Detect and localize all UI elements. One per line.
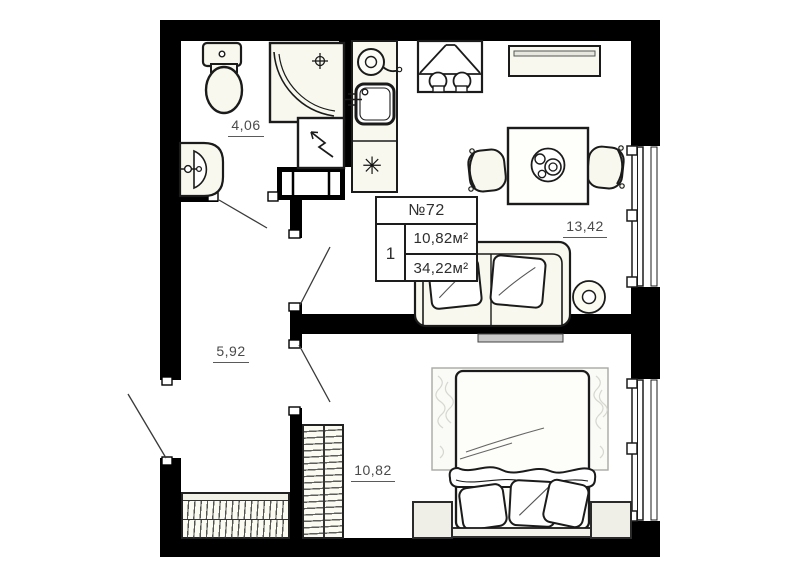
wall-right-1: [631, 20, 660, 146]
wall-top: [160, 20, 660, 41]
bathroom-door-swing: [219, 200, 267, 228]
door-jambs: [162, 192, 300, 465]
sofa-pillow-right: [490, 255, 546, 308]
kitchen-living-area-label: 13,42: [555, 218, 615, 238]
window-living: [627, 146, 657, 287]
wardrobe-bedroom: [302, 424, 344, 539]
vent-shaft: [277, 167, 345, 200]
bed-headboard: [451, 528, 592, 537]
dining-chair-left: [467, 148, 507, 193]
bathroom-area-label: 4,06: [218, 117, 274, 137]
refrigerator-snowflake-icon: ✳: [358, 152, 386, 180]
kitchen-living-area-value: 13,42: [563, 218, 607, 238]
entry-door-swing: [128, 394, 166, 458]
bed-pillow-3: [542, 478, 590, 528]
kitchen-cabinet: [509, 46, 600, 76]
unit-room-count: 1: [377, 225, 406, 282]
wardrobe-hallway-track: [183, 494, 288, 501]
unit-number: №72: [377, 198, 476, 225]
bathroom-sink: [180, 143, 223, 196]
plate-icon: [532, 149, 565, 182]
unit-info-box: №72 1 10,82м² 34,22м²: [375, 196, 478, 282]
nightstand-left: [413, 502, 452, 538]
bedroom-area-label: 10,82: [343, 462, 403, 482]
bed: [450, 371, 596, 537]
dining-table: [508, 128, 588, 204]
bedroom-area-value: 10,82: [351, 462, 395, 482]
unit-living-area: 10,82м²: [406, 225, 476, 255]
wall-right-2: [631, 287, 660, 379]
hallway-area-label: 5,92: [203, 343, 259, 363]
pouf: [573, 281, 605, 313]
wardrobe-bedroom-divider: [323, 426, 325, 537]
wardrobe-hallway-row1: [183, 501, 288, 520]
bedroom-door-swing: [299, 345, 330, 402]
bathroom-area-value: 4,06: [228, 117, 263, 137]
window-bedroom: [627, 379, 657, 521]
dining-chair-right: [586, 145, 625, 189]
wall-left-upper: [160, 20, 181, 380]
floor-plan: ✳ 4,06 5,92 13,42 10,82 №72 1 10,82м² 34…: [0, 0, 800, 582]
water-heater: [298, 118, 344, 168]
kitchen-door-swing: [300, 247, 330, 305]
toilet: [203, 43, 242, 113]
wardrobe-hallway: [181, 492, 290, 539]
unit-total-area: 34,22м²: [406, 255, 476, 283]
wardrobe-hallway-row2: [183, 520, 288, 538]
hallway-area-value: 5,92: [213, 343, 248, 363]
shower-cabin: [270, 43, 344, 122]
stove-with-hood: [418, 41, 482, 92]
nightstand-right: [591, 502, 631, 538]
wall-bedroom-left: [290, 408, 302, 538]
floor-plan-drawing: [0, 0, 800, 582]
bed-pillow-1: [458, 483, 507, 531]
tv: [478, 334, 563, 342]
wall-bottom: [160, 538, 660, 557]
